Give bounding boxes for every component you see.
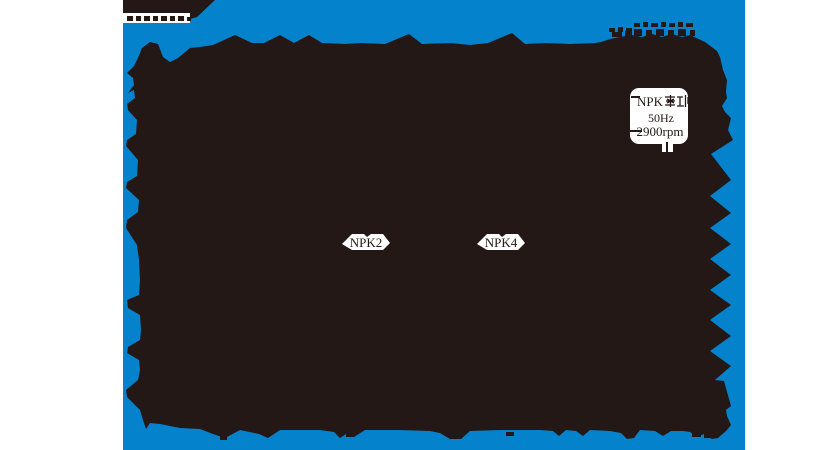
svg-text:NPK4: NPK4 bbox=[485, 235, 518, 250]
svg-text:50Hz: 50Hz bbox=[648, 111, 674, 125]
svg-text:NPK2: NPK2 bbox=[350, 235, 383, 250]
svg-text:2900rpm: 2900rpm bbox=[637, 124, 684, 139]
svg-text:NPK: NPK bbox=[637, 94, 664, 109]
